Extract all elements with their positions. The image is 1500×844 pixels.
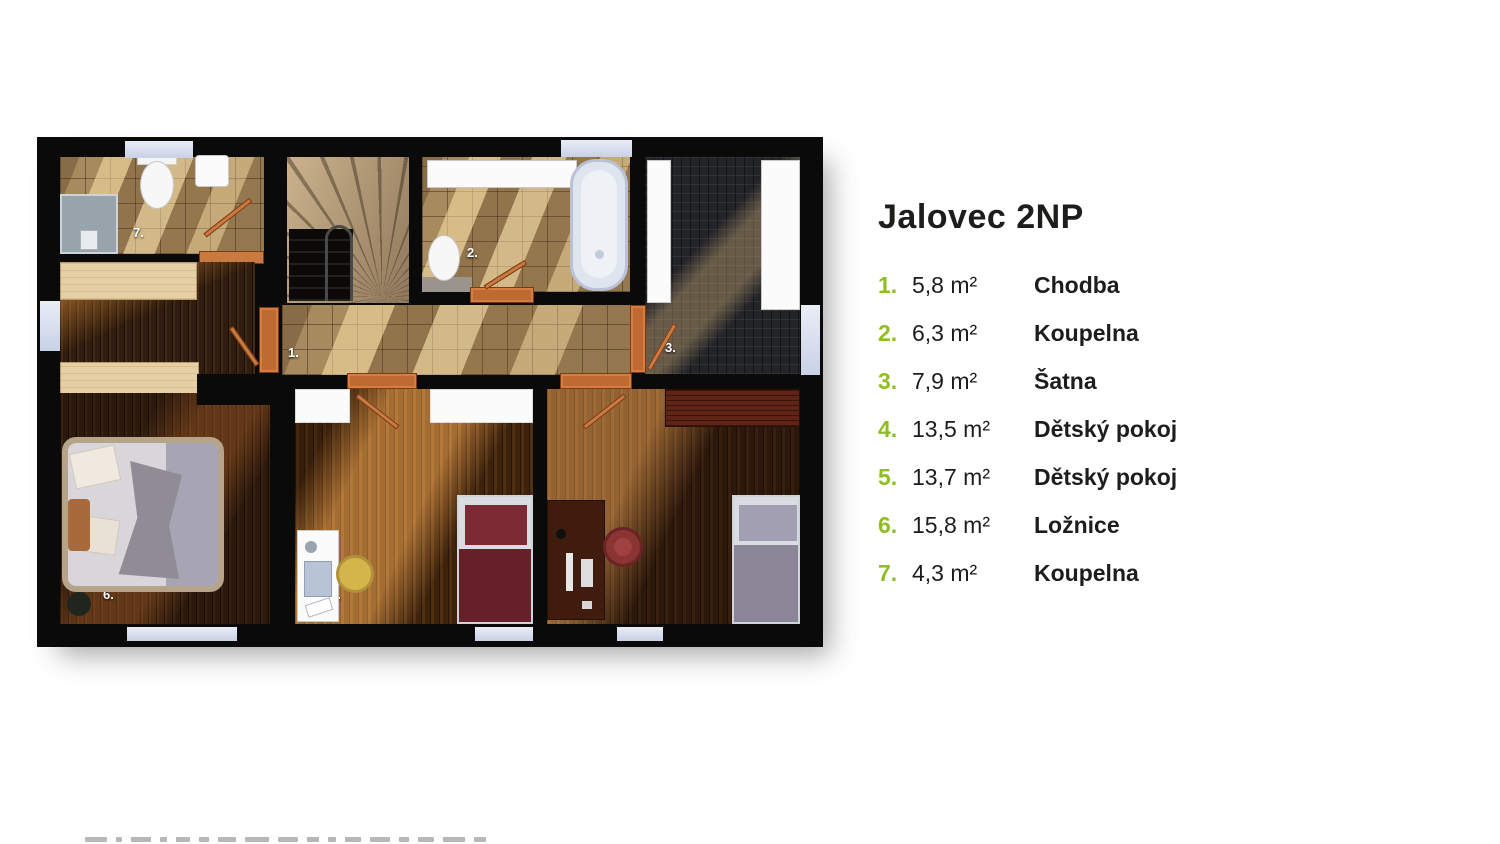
plant-icon (67, 592, 91, 616)
chair-icon-5 (336, 555, 374, 593)
staircase (287, 157, 409, 303)
legend-room-name: Koupelna (1034, 558, 1139, 588)
single-bed-icon-4 (732, 495, 800, 624)
shower-icon (60, 194, 118, 254)
legend-area: 13,7 m² (912, 462, 1034, 492)
legend-room-name: Dětský pokoj (1034, 462, 1177, 492)
door-bathroom2 (470, 287, 534, 303)
legend-room-name: Dětský pokoj (1034, 414, 1177, 444)
window-bottom-2 (475, 627, 533, 641)
page-title: Jalovec 2NP (878, 198, 1438, 237)
chair-icon-4 (603, 527, 643, 567)
legend-row-6: 6. 15,8 m² Ložnice (878, 510, 1438, 540)
toilet-icon-2 (428, 235, 460, 281)
door-wardrobe3 (630, 305, 646, 373)
window-light-band (430, 389, 533, 423)
room-number-7: 7. (133, 225, 144, 240)
legend-room-name: Koupelna (1034, 318, 1139, 348)
legend-number: 1. (878, 270, 912, 300)
wardrobe-icon-4 (665, 389, 800, 427)
wardrobe-left-icon (647, 160, 671, 303)
legend-rows: 1. 5,8 m² Chodba 2. 6,3 m² Koupelna 3. 7… (878, 270, 1438, 588)
window-top-1 (125, 141, 193, 158)
vanity-icon (427, 160, 577, 188)
legend-number: 5. (878, 462, 912, 492)
window-left (40, 301, 60, 351)
legend-number: 3. (878, 366, 912, 396)
legend-room-name: Ložnice (1034, 510, 1120, 540)
door-kidsroom5 (347, 373, 417, 389)
page: 7. 2. 3. (0, 0, 1500, 844)
legend-number: 7. (878, 558, 912, 588)
cropped-text-artifact (85, 837, 486, 842)
window-top-2 (561, 140, 632, 157)
stair-railing (325, 225, 353, 301)
room-number-1: 1. (288, 345, 299, 360)
legend-area: 7,9 m² (912, 366, 1034, 396)
room-hallway-1: 1. (282, 305, 630, 375)
legend-area: 4,3 m² (912, 558, 1034, 588)
legend-number: 4. (878, 414, 912, 444)
wall-stub (197, 374, 270, 405)
single-bed-icon-5 (457, 495, 533, 624)
legend-row-5: 5. 13,7 m² Dětský pokoj (878, 462, 1438, 492)
bathtub-icon (570, 159, 628, 291)
wardrobe-shelf-top-icon (60, 262, 197, 300)
toilet-icon (140, 161, 174, 209)
window-bottom-3 (617, 627, 663, 641)
legend: Jalovec 2NP 1. 5,8 m² Chodba 2. 6,3 m² K… (878, 198, 1438, 588)
legend-number: 6. (878, 510, 912, 540)
window-light-band (295, 389, 350, 423)
legend-row-7: 7. 4,3 m² Koupelna (878, 558, 1438, 588)
floor-plan: 7. 2. 3. (37, 137, 823, 647)
legend-area: 13,5 m² (912, 414, 1034, 444)
door-hall (259, 307, 279, 373)
legend-room-name: Šatna (1034, 366, 1097, 396)
door-kidsroom4 (560, 373, 632, 389)
legend-row-4: 4. 13,5 m² Dětský pokoj (878, 414, 1438, 444)
legend-number: 2. (878, 318, 912, 348)
room-number-2: 2. (467, 245, 478, 260)
legend-row-2: 2. 6,3 m² Koupelna (878, 318, 1438, 348)
double-bed-icon (62, 437, 224, 592)
legend-area: 15,8 m² (912, 510, 1034, 540)
desk-icon-5 (297, 530, 339, 622)
desk-icon-4 (547, 500, 605, 620)
legend-area: 6,3 m² (912, 318, 1034, 348)
sink-icon (195, 155, 229, 187)
legend-area: 5,8 m² (912, 270, 1034, 300)
legend-row-1: 1. 5,8 m² Chodba (878, 270, 1438, 300)
window-right (801, 305, 820, 375)
legend-room-name: Chodba (1034, 270, 1120, 300)
legend-row-3: 3. 7,9 m² Šatna (878, 366, 1438, 396)
wardrobe-right-icon (761, 160, 800, 310)
window-bottom-1 (127, 627, 237, 641)
